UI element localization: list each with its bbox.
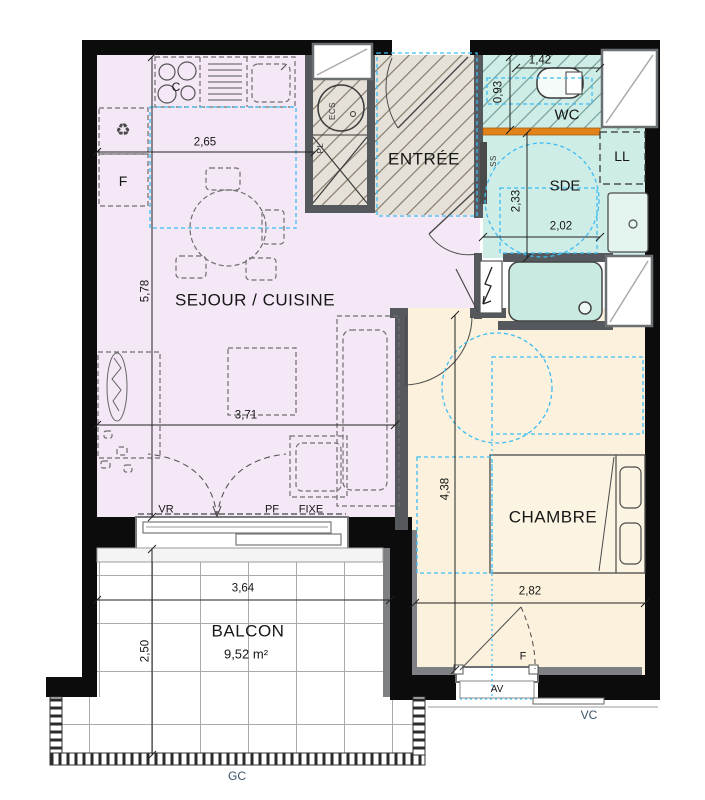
chambre-door [406, 315, 472, 385]
water-heater-tag: ECS [329, 102, 337, 120]
recycle-icon: ♻ [115, 122, 130, 139]
fridge-tag: F [119, 174, 128, 188]
floor-plan: SEJOUR / CUISINE ENTRÉE WC SDE LL CHAMBR… [0, 0, 705, 800]
water-heater [318, 85, 364, 131]
shower-tray [509, 262, 602, 321]
shutter-tag: VR [158, 505, 173, 516]
entree-label: ENTRÉE [388, 151, 460, 168]
dim-balcon-depth: 2,50 [140, 640, 152, 662]
chair [246, 258, 276, 280]
sde-door [429, 189, 477, 255]
balcony-railing [50, 697, 425, 765]
window-tag: F [520, 652, 527, 663]
dim-balcon-width: 3,64 [232, 583, 254, 595]
dim-chambre-height: 4,38 [440, 478, 452, 500]
balcon-area-label: 9,52 m² [224, 648, 268, 661]
shower-drain [579, 302, 591, 314]
plan-linework [0, 0, 705, 800]
sill-tag: AV [491, 685, 504, 695]
entry-door [386, 57, 468, 128]
wc-label: WC [555, 108, 580, 123]
french-door-tag: PF [265, 505, 279, 516]
dim-sejour-width: 3,71 [235, 410, 257, 422]
towel-radiator-tag: SS [490, 155, 498, 167]
kitchen-sink [252, 64, 290, 102]
dim-sde-height: 2,33 [511, 190, 523, 212]
sofa [337, 316, 399, 506]
fixed-panel-tag: FIXE [299, 505, 323, 516]
bay-window [97, 514, 383, 562]
chair [176, 256, 206, 278]
wc-window [602, 50, 657, 127]
chair [206, 168, 240, 190]
dim-kitchen-width: 2,65 [194, 137, 216, 149]
sliding-shutter-tag: VC [581, 709, 598, 721]
dim-wc-width: 1,42 [529, 55, 551, 67]
balcon-label: BALCON [212, 623, 285, 640]
dim-chambre-width: 2,82 [519, 586, 541, 598]
kitchen-window [313, 44, 372, 79]
sofa-chaise [290, 436, 347, 497]
shower-window [606, 256, 652, 326]
drainer [208, 64, 242, 100]
closet-tag: PL [317, 143, 325, 154]
dim-wc-depth: 0,93 [493, 81, 505, 103]
orange-partition [483, 128, 600, 135]
dim-sde-width: 2,02 [550, 221, 572, 233]
coffee-table [228, 348, 296, 415]
dim-sejour-height: 5,78 [140, 280, 152, 302]
chair [262, 210, 284, 244]
guardrail-tag: GC [228, 770, 246, 782]
electrical-panel [480, 261, 502, 313]
washing-machine-label: LL [614, 149, 630, 163]
sde-label: SDE [550, 179, 581, 194]
towel-radiator [480, 142, 487, 204]
plant-zone [98, 352, 160, 458]
exterior-walls [46, 40, 660, 700]
plant [107, 353, 127, 421]
toilet [537, 68, 583, 98]
cooktop-tag: C [172, 81, 181, 93]
sejour-label: SEJOUR / CUISINE [175, 292, 335, 309]
washbasin [608, 193, 648, 252]
sejour-furniture [98, 168, 399, 506]
chambre-label: CHAMBRE [509, 509, 598, 526]
